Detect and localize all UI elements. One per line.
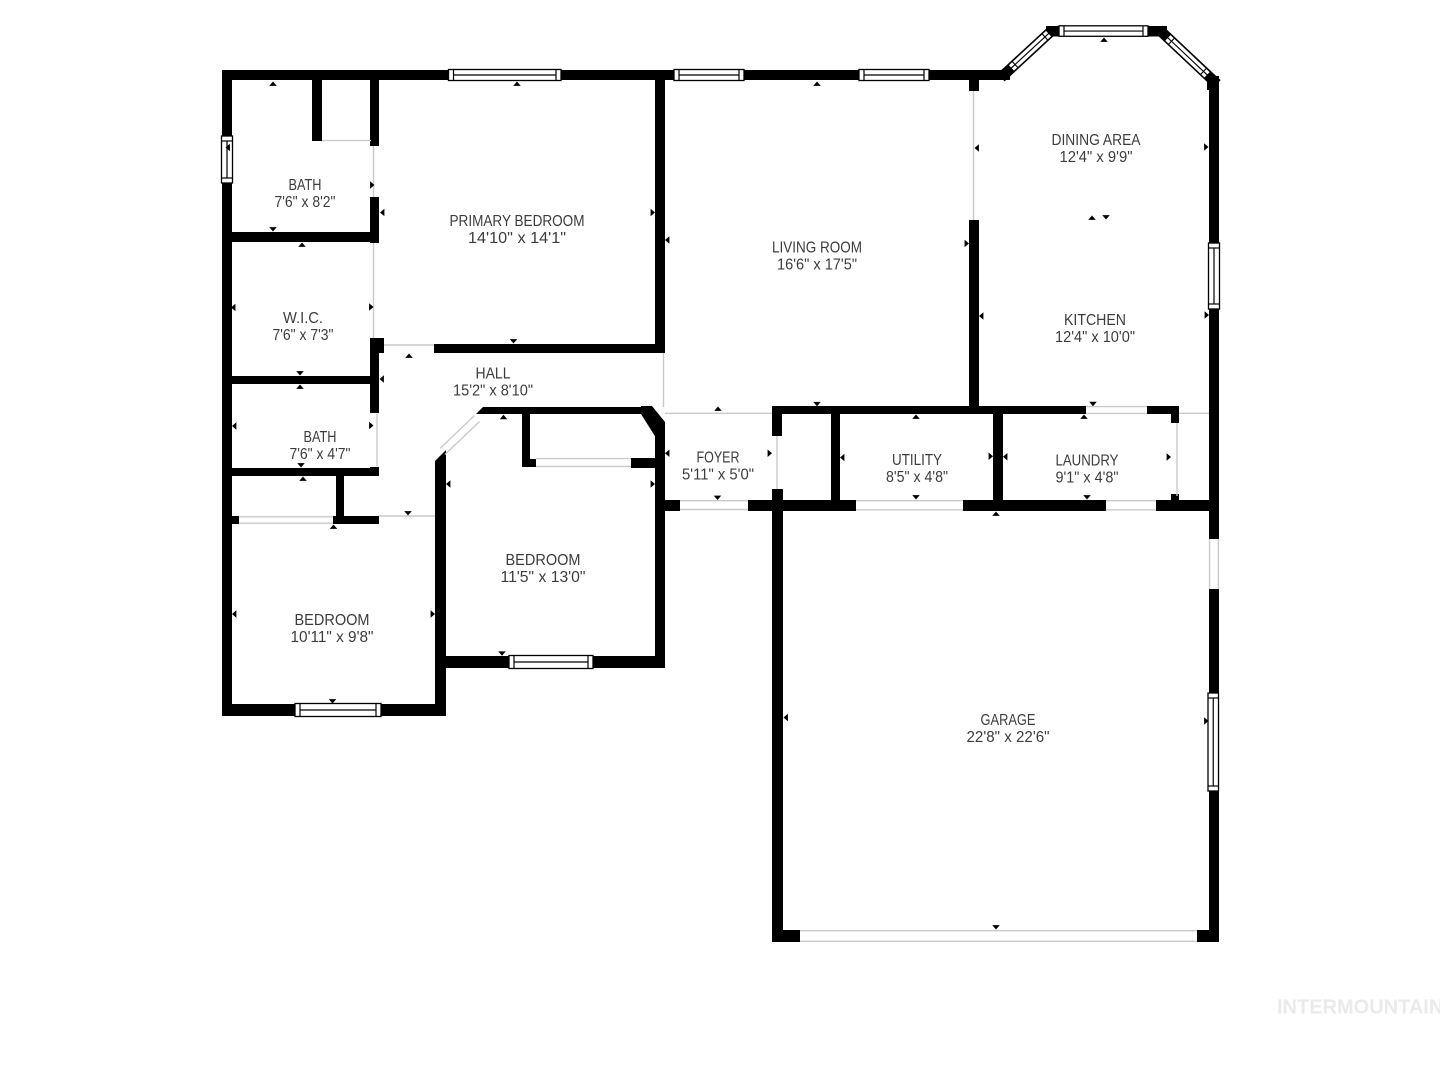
svg-text:LIVING ROOM: LIVING ROOM (772, 240, 862, 257)
svg-text:BEDROOM: BEDROOM (506, 552, 581, 569)
svg-text:9'1" x 4'8": 9'1" x 4'8" (1056, 470, 1119, 487)
svg-text:14'10" x 14'1": 14'10" x 14'1" (468, 230, 566, 247)
svg-text:KITCHEN: KITCHEN (1064, 312, 1126, 329)
svg-text:W.I.C.: W.I.C. (283, 310, 323, 327)
svg-text:7'6" x 7'3": 7'6" x 7'3" (273, 327, 334, 344)
svg-text:HALL: HALL (476, 366, 511, 383)
svg-text:8'5" x 4'8": 8'5" x 4'8" (886, 469, 948, 486)
svg-text:BATH: BATH (289, 177, 322, 194)
svg-text:16'6" x 17'5": 16'6" x 17'5" (777, 257, 857, 274)
svg-text:GARAGE: GARAGE (981, 712, 1036, 729)
svg-text:BEDROOM: BEDROOM (295, 612, 370, 629)
svg-text:15'2" x 8'10": 15'2" x 8'10" (453, 383, 533, 400)
svg-text:BATH: BATH (304, 429, 337, 446)
svg-text:7'6" x 8'2": 7'6" x 8'2" (275, 194, 336, 211)
svg-text:10'11" x 9'8": 10'11" x 9'8" (291, 629, 374, 646)
svg-text:12'4" x 9'9": 12'4" x 9'9" (1060, 149, 1133, 166)
svg-text:12'4" x 10'0": 12'4" x 10'0" (1055, 329, 1135, 346)
svg-text:LAUNDRY: LAUNDRY (1056, 453, 1119, 470)
svg-text:PRIMARY BEDROOM: PRIMARY BEDROOM (450, 213, 585, 230)
svg-text:DINING AREA: DINING AREA (1052, 132, 1142, 149)
svg-text:FOYER: FOYER (697, 450, 740, 467)
svg-text:22'8" x 22'6": 22'8" x 22'6" (967, 729, 1050, 746)
svg-text:11'5" x 13'0": 11'5" x 13'0" (501, 569, 586, 586)
svg-text:5'11" x 5'0": 5'11" x 5'0" (682, 467, 754, 484)
svg-text:UTILITY: UTILITY (892, 452, 942, 469)
svg-text:7'6" x 4'7": 7'6" x 4'7" (290, 446, 351, 463)
svg-text:INTERMOUNTAIN: INTERMOUNTAIN (1277, 997, 1440, 1019)
